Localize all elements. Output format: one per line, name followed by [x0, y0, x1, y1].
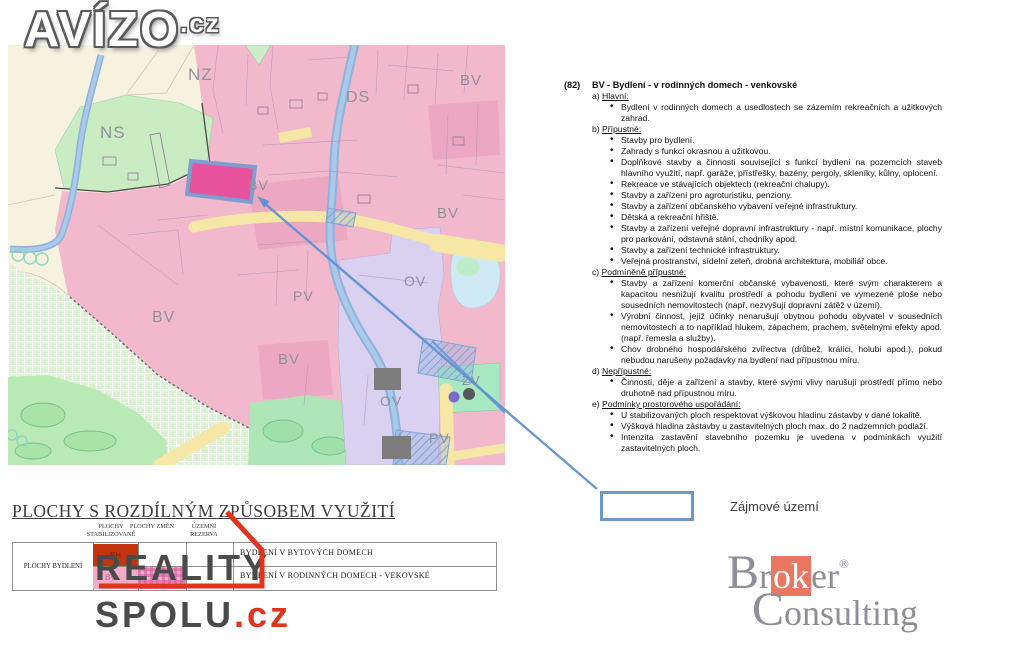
- bullet-item: U stabilizovaných ploch respektovat výšk…: [610, 410, 942, 421]
- legend-row-label: PLOCHY BYDLENÍ: [13, 543, 93, 590]
- section-c: c) Podmíněně přípustné:: [592, 267, 942, 278]
- building-block: [374, 368, 401, 390]
- map-label-pv: PV: [429, 431, 450, 445]
- map-label-ns: NS: [100, 124, 126, 141]
- section-label: Podmínky prostorového uspořádání:: [602, 399, 741, 409]
- map-label-bv: BV: [460, 73, 482, 88]
- map-label-bv: BV: [248, 178, 269, 192]
- regulation-title: BV - Bydlení - v rodinných domech - venk…: [592, 80, 797, 90]
- avizo-logo: AVÍZO.cz: [24, 2, 221, 58]
- bullet-item: Stavby a zařízení pro agroturistiku, pen…: [610, 190, 942, 201]
- avizo-logo-text: AVÍZO: [24, 3, 180, 57]
- bullet-item: Zahrady s funkcí okrasnou a užitkovou.: [610, 146, 942, 157]
- section-prefix: b): [592, 124, 600, 134]
- broker-consulting-logo: Broker® Consulting: [727, 549, 918, 634]
- interest-area-label: Zájmové území: [730, 499, 819, 514]
- reality-spolu-line1: REALITY: [95, 550, 291, 586]
- interest-area-swatch: [600, 491, 694, 521]
- map-label-ov: OV: [380, 394, 402, 408]
- map-label-bv: BV: [278, 352, 300, 367]
- bullet-item: Stavby a zařízení technické infrastruktu…: [610, 245, 942, 256]
- section-prefix: e): [592, 399, 600, 409]
- bullet-item: Stavby pro bydlení.: [610, 135, 942, 146]
- legend-col-changes: PLOCHY ZMĚN: [128, 523, 176, 531]
- bullet-item: Dětská a rekreační hřiště.: [610, 212, 942, 223]
- bullet-item: Bydlení v rodinných domech a usedlostech…: [610, 102, 942, 124]
- reality-spolu-logo: REALITY SPOLU.cz: [95, 550, 291, 633]
- section-e: e) Podmínky prostorového uspořádání:: [592, 399, 942, 410]
- reality-spolu-word: SPOLU: [95, 594, 234, 635]
- bullet-item: Doplňkové stavby a činnosti související …: [610, 157, 942, 179]
- section-label: Hlavní:: [602, 91, 629, 101]
- bullet-item: Výšková hladina zástavby u zastavitelnýc…: [610, 421, 942, 432]
- section-d: d) Nepřípustné:: [592, 366, 942, 377]
- map-label-bv: BV: [437, 206, 459, 221]
- section-prefix: c): [592, 267, 599, 277]
- bullet-item: Stavby a zařízení komerční občanské vyba…: [610, 278, 942, 311]
- map-label-ds: DS: [346, 90, 370, 106]
- broker-registered-mark: ®: [839, 556, 849, 571]
- map-label-nz: NZ: [188, 66, 213, 83]
- section-label: Nepřípustné:: [602, 366, 651, 376]
- legend-col-reserve: ÚZEMNÍ REZERVA: [180, 523, 228, 538]
- building-block: [382, 436, 411, 459]
- map-label-pv: PV: [293, 289, 314, 303]
- avizo-logo-tld: .cz: [180, 8, 221, 38]
- map-label-zv: ZV: [462, 374, 481, 387]
- reality-spolu-tld: .cz: [234, 594, 291, 635]
- zoning-map: [8, 45, 505, 465]
- bullet-item: Činnosti, děje a zařízení a stavby, kter…: [610, 377, 942, 399]
- broker-line2: Consulting: [752, 586, 918, 634]
- section-a: a) Hlavní:: [592, 91, 942, 102]
- bullet-item: Intenzita zastavění stavebního pozemku j…: [610, 432, 942, 454]
- bullet-item: Chov drobného hospodářského zvířectva (d…: [610, 344, 942, 366]
- reality-spolu-line2: SPOLU.cz: [95, 597, 291, 633]
- regulation-header: (82) BV - Bydlení - v rodinných domech -…: [564, 80, 942, 91]
- page: NZ NS DS BV BV BV BV BV PV OV OV ZV PV A…: [0, 0, 1024, 647]
- legend-title: PLOCHY S ROZDÍLNÝM ZPŮSOBEM VYUŽITÍ: [12, 501, 395, 522]
- section-label: Přípustné:: [602, 124, 641, 134]
- map-label-bv: BV: [152, 310, 175, 326]
- regulation-code: (82): [564, 80, 580, 91]
- section-label: Podmíněně přípustné:: [602, 267, 687, 277]
- bullet-item: Veřejná prostranství, sídelní zeleň, dro…: [610, 256, 942, 267]
- regulations-text: (82) BV - Bydlení - v rodinných domech -…: [564, 80, 942, 454]
- bullet-item: Stavby a zařízení občanského vybavení ve…: [610, 201, 942, 212]
- interest-parcel: [187, 161, 255, 202]
- map-label-ov: OV: [404, 274, 426, 288]
- bullet-item: Stavby a zařízení veřejné dopravní infra…: [610, 223, 942, 245]
- section-prefix: d): [592, 366, 600, 376]
- section-prefix: a): [592, 91, 600, 101]
- bullet-item: Výrobní činnost, jejíž účinky nenarušují…: [610, 311, 942, 344]
- zoning-map-svg: [8, 45, 505, 465]
- bullet-item: Rekreace ve stávajících objektech (rekre…: [610, 179, 942, 190]
- section-b: b) Přípustné:: [592, 124, 942, 135]
